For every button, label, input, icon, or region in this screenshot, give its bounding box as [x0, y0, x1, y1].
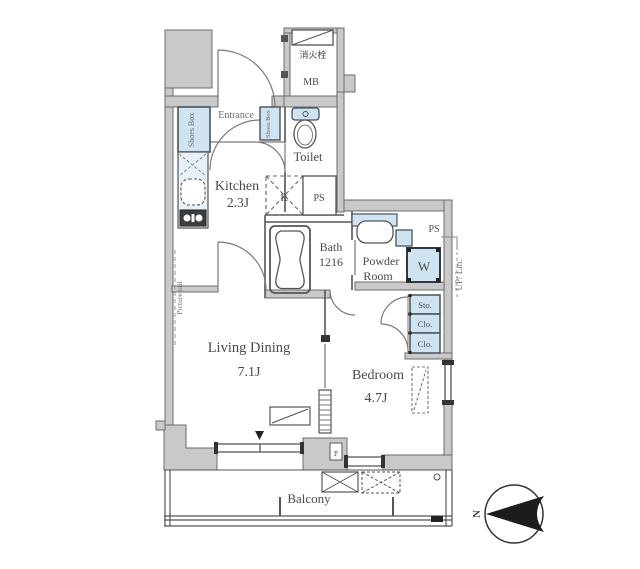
entrance-door-arc [218, 50, 275, 107]
floor-plan-drawing: 消火栓 MB Entrance Shoes Box Shoes Box Toil… [0, 0, 640, 569]
pipe-space-top-label: PS [313, 193, 324, 204]
closet-door-arc-1 [381, 297, 408, 324]
sliding-door [319, 390, 331, 433]
wall-below-mb [284, 96, 344, 107]
compass [485, 485, 544, 543]
toilet-fixture [292, 108, 319, 148]
washing-machine-label: W [418, 259, 431, 274]
up-lin-label: UP/ Lin. [454, 259, 464, 290]
living-dining-size: 7.1J [238, 365, 262, 380]
wall-bedroom-bottom [383, 455, 452, 470]
wall-left [165, 88, 173, 425]
north-label: N [471, 510, 483, 518]
washing-machine [396, 230, 440, 282]
wall-top-right-section [344, 200, 452, 211]
wall-closet-bottom [405, 353, 452, 359]
closet-label-2: Clo. [418, 339, 432, 349]
section-marker [255, 431, 264, 440]
powder-room-label-1: Powder [363, 254, 400, 268]
wall-step-right [344, 75, 355, 92]
balcony-dashed-box [362, 472, 400, 493]
pipe-label: P [334, 450, 338, 458]
bedroom-side-window [445, 363, 451, 402]
grill [192, 214, 195, 222]
storage-label: Sto. [418, 300, 431, 310]
wall-powder-bottom [355, 282, 444, 290]
entrance-label: Entrance [218, 110, 254, 121]
wall-left-tab [156, 421, 165, 430]
balcony-label: Balcony [287, 491, 331, 506]
hinge-mark-top [281, 35, 288, 42]
bedroom-label: Bedroom [352, 368, 404, 383]
pipe-space-right-label: PS [428, 224, 439, 235]
meter-box-label: MB [303, 77, 319, 88]
living-dining-label: Living Dining [208, 340, 291, 356]
bath-size: 1216 [319, 255, 343, 269]
bathtub [270, 226, 310, 293]
fire-hydrant-label: 消火栓 [299, 49, 326, 60]
powder-room-label-2: Room [363, 269, 393, 283]
toilet-label: Toilet [294, 150, 324, 164]
washbasin [352, 214, 397, 243]
kitchen-label: Kitchen [215, 179, 259, 194]
kitchen-size: 2.3J [227, 195, 249, 210]
wall-mb-right [337, 28, 344, 96]
wall-right-upper [337, 92, 344, 212]
closet-door-arc-2 [381, 324, 408, 351]
floor-plan: 消火栓 MB Entrance Shoes Box Shoes Box Toil… [0, 0, 640, 569]
burner-2 [196, 215, 203, 222]
entrance-inner-door-arc [210, 120, 260, 170]
balcony-x-lines [322, 472, 358, 492]
picture-rail-label: Picture rail [175, 281, 184, 314]
bedroom-bottom-window [347, 457, 383, 466]
bath-label: Bath [320, 240, 343, 254]
living-counter [270, 407, 310, 425]
shoes-box-small-label: Shoes Box [265, 109, 272, 138]
kitchen-counter [178, 152, 208, 228]
shoes-box-label: Shoes Box [187, 113, 196, 147]
bedroom-dashed-item [412, 367, 428, 413]
toilet-door-arc [255, 142, 285, 172]
wall-bottom-left-block [164, 425, 217, 470]
hinge-mark-bottom [281, 71, 288, 78]
wall-bath-bottom [265, 290, 330, 298]
kitchen-living-door-arc [218, 242, 266, 290]
closet-label-1: Clo. [418, 319, 432, 329]
small-pipe-box [396, 230, 412, 246]
burner-1 [184, 215, 191, 222]
living-window [217, 444, 303, 452]
kitchen-sink [181, 179, 205, 205]
balcony-dark-mark [431, 516, 443, 522]
bedroom-size: 4.7J [365, 391, 389, 406]
wall-right-b-upper [444, 200, 452, 363]
refrigerator-label: R [280, 192, 288, 204]
drain-circle [434, 474, 440, 480]
wall-entrance-left [165, 96, 218, 107]
powder-door-arc [330, 290, 355, 315]
pillar-top-left [165, 30, 212, 88]
partition-node [321, 335, 330, 342]
